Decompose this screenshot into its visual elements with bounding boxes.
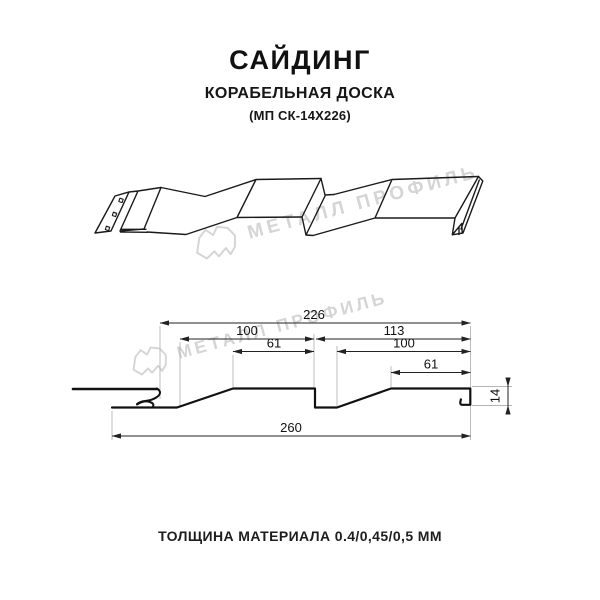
model-code: (МП СК-14Х226) [0, 108, 600, 123]
header-block: САЙДИНГ КОРАБЕЛЬНАЯ ДОСКА (МП СК-14Х226) [0, 46, 600, 123]
profile-3d-view [95, 177, 483, 236]
board-2 [306, 177, 479, 236]
dimension-14: 14 [488, 379, 509, 412]
dimension-lines: 226 100 113 61 100 61 [112, 307, 508, 436]
page-title: САЙДИНГ [0, 46, 600, 76]
step [302, 179, 334, 236]
dimension-label-61-right: 61 [424, 357, 438, 372]
lock-ridge [120, 188, 161, 233]
dimension-226: 226 [160, 307, 471, 323]
lock-seam [137, 389, 160, 407]
dimension-label-226: 226 [303, 307, 325, 322]
profile-outline [73, 389, 470, 408]
dimension-label-100-left: 100 [236, 323, 258, 338]
flange-holes [105, 198, 123, 230]
dimension-label-100-right: 100 [393, 336, 415, 351]
cross-section-view: 226 100 113 61 100 61 [73, 307, 512, 440]
panel-profile [112, 389, 470, 408]
dimension-100-right: 100 [337, 336, 471, 352]
page-subtitle: КОРАБЕЛЬНАЯ ДОСКА [0, 85, 600, 103]
nail-flange [95, 192, 129, 233]
dimension-260: 260 [112, 420, 471, 436]
dimension-label-260: 260 [280, 420, 302, 435]
extension-lines [112, 326, 512, 440]
dimension-100-left: 100 [180, 323, 314, 339]
dimension-label-14: 14 [488, 389, 503, 403]
thickness-note: ТОЛЩИНА МАТЕРИАЛА 0.4/0,45/0,5 ММ [0, 528, 600, 544]
hem-fold [452, 177, 483, 235]
dimension-61-right: 61 [391, 357, 471, 373]
board-1 [147, 179, 321, 235]
dimension-label-61-left: 61 [267, 336, 281, 351]
